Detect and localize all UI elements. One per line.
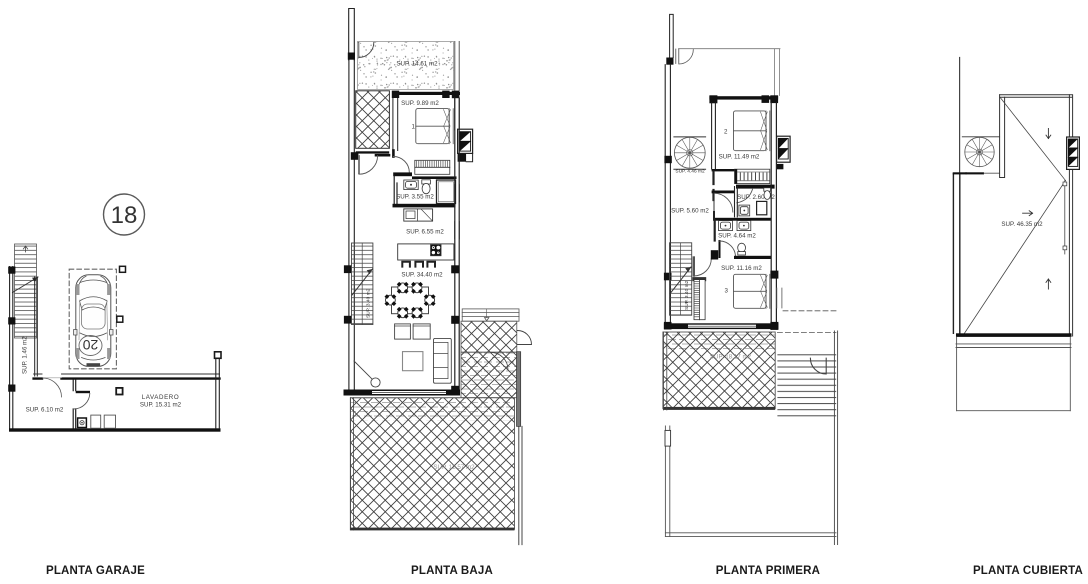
- svg-text:SUP. 11.16 m2: SUP. 11.16 m2: [721, 265, 762, 272]
- svg-text:PLANTA GARAJE: PLANTA GARAJE: [46, 565, 145, 577]
- svg-text:SUP. 11.49 m2: SUP. 11.49 m2: [719, 154, 760, 161]
- svg-text:SUP. 34.40 m2: SUP. 34.40 m2: [401, 272, 443, 279]
- svg-text:SUP. 6.55 m2: SUP. 6.55 m2: [406, 229, 444, 236]
- svg-text:LAVADERO: LAVADERO: [142, 394, 180, 401]
- svg-text:SUP. 3.55 m2: SUP. 3.55 m2: [396, 193, 434, 200]
- svg-text:PLANTA CUBIERTA: PLANTA CUBIERTA: [973, 565, 1083, 577]
- svg-text:SUP. 6.10 m2: SUP. 6.10 m2: [26, 407, 64, 414]
- svg-text:SUP. 4.46 m2: SUP. 4.46 m2: [675, 169, 705, 175]
- svg-text:PLANTA BAJA: PLANTA BAJA: [411, 565, 493, 577]
- svg-text:1: 1: [412, 124, 416, 131]
- svg-text:SUP. 4.64 m2: SUP. 4.64 m2: [718, 233, 756, 240]
- svg-text:SUP. 46.35 m2: SUP. 46.35 m2: [1001, 221, 1043, 228]
- svg-text:SUP. 3.40 m2: SUP. 3.40 m2: [366, 288, 372, 318]
- svg-text:20: 20: [83, 337, 99, 353]
- svg-text:3: 3: [725, 288, 729, 295]
- svg-text:SUP. 12.57 m2: SUP. 12.57 m2: [433, 464, 475, 471]
- svg-text:SUP. 15.31 m2: SUP. 15.31 m2: [140, 402, 182, 409]
- svg-text:SUP. 18.17 m2: SUP. 18.17 m2: [710, 354, 752, 361]
- svg-text:SUP. 9.89 m2: SUP. 9.89 m2: [401, 100, 439, 107]
- svg-text:SUP. 3.40 m2: SUP. 3.40 m2: [684, 280, 690, 310]
- svg-text:2: 2: [724, 129, 728, 136]
- svg-text:PLANTA PRIMERA: PLANTA PRIMERA: [716, 565, 820, 577]
- svg-text:SUP. 5.60 m2: SUP. 5.60 m2: [671, 208, 709, 215]
- svg-text:SUP. 14.61 m2: SUP. 14.61 m2: [396, 61, 438, 68]
- svg-text:18: 18: [111, 202, 138, 229]
- svg-text:SUP. 1.46 m2: SUP. 1.46 m2: [22, 336, 29, 374]
